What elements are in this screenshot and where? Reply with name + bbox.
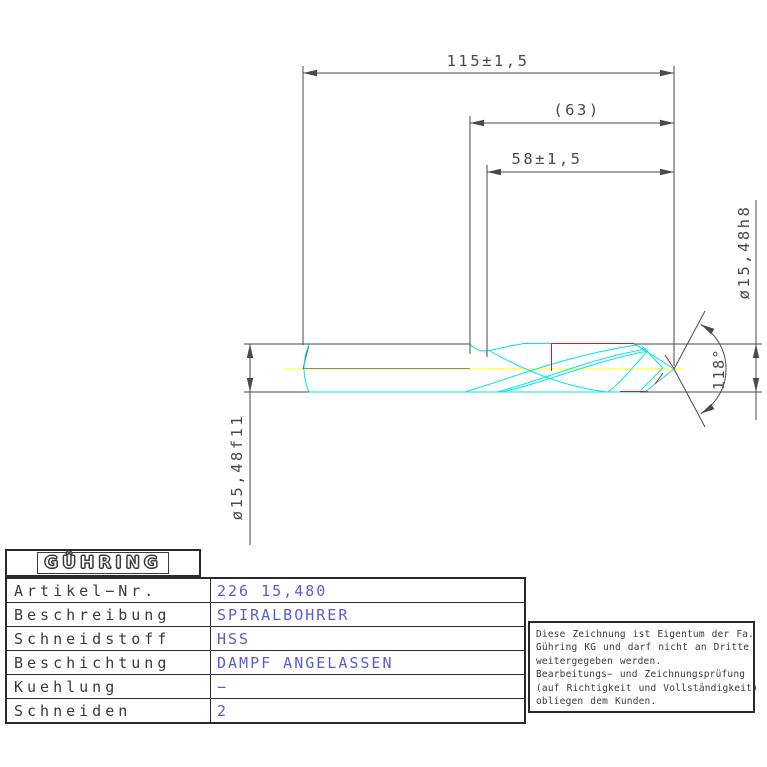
dim-flute-length: 58±1,5 bbox=[487, 150, 674, 357]
notice-line: Bearbeitungs− und Zeichnungsprüfung bbox=[536, 668, 747, 681]
table-row: Beschichtung DAMPF ANGELASSEN bbox=[6, 651, 525, 675]
table-row: Kuehlung − bbox=[6, 675, 525, 699]
ownership-notice: Diese Zeichnung ist Eigentum der Fa. Güh… bbox=[528, 621, 755, 713]
dim-reference-length: (63) bbox=[470, 101, 674, 354]
notice-line: (auf Richtigkeit und Vollständigkeit) bbox=[536, 682, 747, 695]
table-row: Artikel−Nr. 226 15,480 bbox=[6, 578, 525, 603]
spec-value: SPIRALBOHRER bbox=[211, 603, 526, 627]
spec-label: Beschreibung bbox=[6, 603, 211, 627]
logo-frame: GÜHRING bbox=[37, 552, 169, 574]
spec-value: 2 bbox=[211, 699, 526, 724]
dim-reference-length-label: (63) bbox=[553, 101, 600, 119]
guehring-logo: GÜHRING bbox=[44, 553, 162, 573]
dim-shank-diameter-label: ø15,48f11 bbox=[228, 414, 246, 521]
spec-value: DAMPF ANGELASSEN bbox=[211, 651, 526, 675]
dim-flute-length-label: 58±1,5 bbox=[512, 150, 583, 168]
drill-centerline bbox=[284, 369, 684, 370]
spec-label: Kuehlung bbox=[6, 675, 211, 699]
spec-table: Artikel−Nr. 226 15,480 Beschreibung SPIR… bbox=[5, 577, 526, 724]
table-row: Beschreibung SPIRALBOHRER bbox=[6, 603, 525, 627]
spec-label: Schneidstoff bbox=[6, 627, 211, 651]
notice-line: Diese Zeichnung ist Eigentum der Fa. bbox=[536, 628, 747, 641]
notice-line: weitergegeben werden. bbox=[536, 655, 747, 668]
spec-value: − bbox=[211, 675, 526, 699]
notice-line: obliegen dem Kunden. bbox=[536, 695, 747, 708]
table-row: Schneiden 2 bbox=[6, 699, 525, 724]
dim-point-diameter-label: ø15,48h8 bbox=[735, 205, 753, 300]
drawing-sheet: 115±1,5 (63) 58±1,5 ø15,48h8 bbox=[0, 0, 767, 767]
dim-point-angle-label: 118° bbox=[710, 348, 728, 390]
dim-overall-length-label: 115±1,5 bbox=[447, 52, 530, 70]
spec-label: Schneiden bbox=[6, 699, 211, 724]
logo-cell: GÜHRING bbox=[5, 549, 201, 577]
spec-label: Artikel−Nr. bbox=[6, 578, 211, 603]
spec-value: HSS bbox=[211, 627, 526, 651]
dim-point-diameter: ø15,48h8 bbox=[634, 200, 762, 420]
technical-drawing: 115±1,5 (63) 58±1,5 ø15,48h8 bbox=[0, 0, 767, 545]
drill-flutes bbox=[466, 344, 648, 393]
spec-label: Beschichtung bbox=[6, 651, 211, 675]
spec-value: 226 15,480 bbox=[211, 578, 526, 603]
table-row: Schneidstoff HSS bbox=[6, 627, 525, 651]
notice-line: Gühring KG und darf nicht an Dritte bbox=[536, 641, 747, 654]
dim-shank-diameter: ø15,48f11 bbox=[228, 344, 309, 545]
dim-overall-length: 115±1,5 bbox=[303, 52, 674, 366]
